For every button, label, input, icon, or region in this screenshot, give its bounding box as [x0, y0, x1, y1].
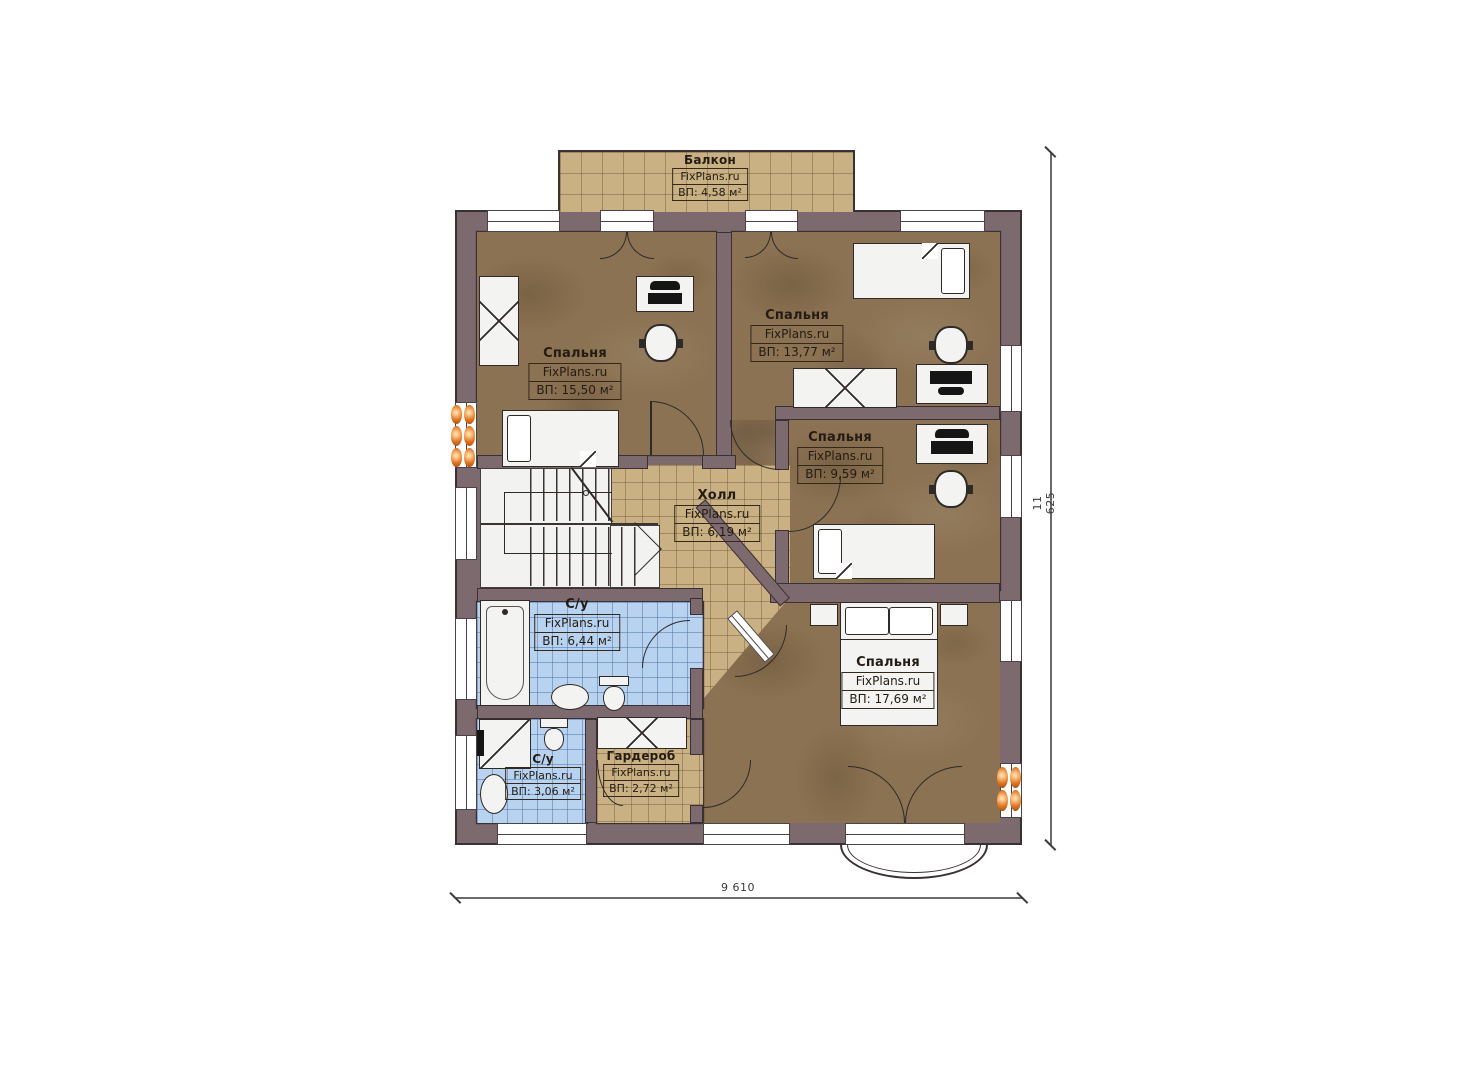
master-balcony-door-opening: [845, 823, 965, 845]
floor-plan-canvas: Балкон FixPlans.ru ВП: 4,58 м² Спальня F…: [0, 0, 1473, 1080]
room-area: ВП: 13,77 м²: [750, 344, 843, 362]
room-brand: FixPlans.ru: [672, 168, 748, 185]
room-label-bathroom-main: С/у FixPlans.ru ВП: 6,44 м²: [534, 597, 620, 651]
single-bed: [813, 524, 935, 579]
bathtub: [480, 600, 530, 706]
radiator-left: [450, 404, 476, 468]
room-name: Спальня: [797, 430, 883, 445]
pillow: [507, 415, 531, 462]
toilet-bowl: [603, 686, 625, 711]
dimension-width-label: 9 610: [713, 881, 763, 894]
room-name: Спальня: [841, 655, 934, 670]
printer-icon: [931, 441, 973, 454]
room-label-balcony: Балкон FixPlans.ru ВП: 4,58 м²: [672, 153, 748, 201]
radiator-dot: [997, 767, 1008, 788]
room-name: С/у: [534, 597, 620, 612]
room-label-bathroom-small: С/у FixPlans.ru ВП: 3,06 м²: [505, 752, 581, 800]
window-bottom-smallbath: [497, 823, 587, 845]
radiator-dot: [1010, 790, 1021, 811]
room-brand: FixPlans.ru: [750, 325, 843, 344]
towel-rail-icon: [477, 730, 484, 756]
window-left-stairs: [455, 487, 477, 560]
window-top-right: [900, 210, 985, 232]
keyboard-icon: [938, 387, 964, 395]
toilet-tank: [540, 718, 568, 728]
room-label-hall: Холл FixPlans.ru ВП: 6,19 м²: [674, 488, 760, 542]
dimension-line-horizontal: [455, 897, 1022, 899]
blanket-fold: [922, 243, 938, 259]
radiator-dot: [464, 448, 475, 467]
radiator-dot: [451, 405, 462, 424]
office-chair: [934, 326, 968, 364]
room-area: ВП: 2,72 м²: [603, 781, 679, 797]
radiator-right: [996, 766, 1022, 812]
dimension-height-label: 11 625: [1031, 483, 1057, 523]
room-brand: FixPlans.ru: [674, 505, 760, 524]
wall-wardrobe-master-b: [690, 805, 703, 823]
radiator-dot: [1010, 767, 1021, 788]
balcony-door-opening-left: [600, 210, 654, 232]
window-right-bedroom-top: [1000, 345, 1022, 412]
room-area: ВП: 4,58 м²: [672, 185, 748, 201]
room-label-bedroom-left: Спальня FixPlans.ru ВП: 15,50 м²: [528, 346, 621, 400]
wall-bedrooms-top-divider: [716, 232, 732, 469]
toilet-bowl: [544, 728, 564, 751]
office-chair: [934, 470, 968, 508]
room-brand: FixPlans.ru: [528, 363, 621, 382]
wardrobe-unit: [479, 276, 519, 366]
room-area: ВП: 9,59 м²: [797, 466, 883, 484]
pillow: [845, 607, 889, 635]
nightstand: [940, 604, 968, 626]
room-label-bedroom-top-right: Спальня FixPlans.ru ВП: 13,77 м²: [750, 308, 843, 362]
room-brand: FixPlans.ru: [797, 447, 883, 466]
monitor-icon: [930, 371, 972, 384]
single-bed: [853, 243, 970, 299]
window-right-master: [1000, 600, 1022, 662]
window-bottom-master: [703, 823, 790, 845]
blanket-line: [841, 639, 937, 640]
pedestal-sink: [480, 774, 508, 814]
room-area: ВП: 6,19 м²: [674, 524, 760, 542]
pillow: [941, 248, 965, 294]
printer-icon: [935, 429, 969, 438]
window-right-bedroom-mid: [1000, 455, 1022, 518]
stair-break-dot: [583, 490, 589, 496]
radiator-dot: [464, 405, 475, 424]
room-name: Спальня: [528, 346, 621, 361]
room-name: Холл: [674, 488, 760, 503]
blanket-fold: [580, 451, 596, 467]
radiator-dot: [451, 448, 462, 467]
printer-icon: [650, 281, 680, 290]
room-brand: FixPlans.ru: [505, 767, 581, 784]
office-chair: [644, 324, 678, 362]
pillow: [889, 607, 933, 635]
balcony-door-opening-right: [745, 210, 798, 232]
window-left-bath: [455, 618, 477, 700]
room-area: ВП: 17,69 м²: [841, 691, 934, 709]
wall-master-north: [770, 583, 1000, 603]
wall-right-bedrooms-divider: [775, 406, 1000, 420]
single-bed: [502, 410, 619, 467]
wall-bath-master-b: [690, 668, 703, 719]
room-area: ВП: 3,06 м²: [505, 784, 581, 800]
room-label-bedroom-mid-right: Спальня FixPlans.ru ВП: 9,59 м²: [797, 430, 883, 484]
printer-icon: [648, 293, 682, 304]
sink: [551, 684, 589, 710]
computer-desk: [916, 424, 988, 464]
room-name: Гардероб: [603, 749, 679, 763]
room-area: ВП: 6,44 м²: [534, 633, 620, 651]
drain-icon: [502, 609, 508, 615]
radiator-dot: [464, 426, 475, 445]
room-brand: FixPlans.ru: [603, 764, 679, 781]
room-label-bedroom-master: Спальня FixPlans.ru ВП: 17,69 м²: [841, 655, 934, 709]
window-top-left: [487, 210, 560, 232]
bathtub-inner: [486, 606, 524, 700]
toilet-tank: [599, 676, 629, 686]
room-label-wardrobe: Гардероб FixPlans.ru ВП: 2,72 м²: [603, 749, 679, 797]
blanket-fold: [836, 563, 852, 579]
wardrobe-unit: [597, 717, 687, 749]
wardrobe-unit: [793, 368, 897, 408]
window-left-smallbath: [455, 735, 477, 810]
room-area: ВП: 15,50 м²: [528, 382, 621, 400]
computer-desk: [916, 364, 988, 404]
room-name: С/у: [505, 752, 581, 766]
nightstand: [810, 604, 838, 626]
room-name: Спальня: [750, 308, 843, 323]
wall-wardrobe-master-a: [690, 719, 703, 755]
room-name: Балкон: [672, 153, 748, 167]
desk: [636, 276, 694, 312]
wall-smallbath-wardrobe: [585, 719, 597, 823]
room-brand: FixPlans.ru: [841, 672, 934, 691]
room-brand: FixPlans.ru: [534, 614, 620, 633]
radiator-dot: [451, 426, 462, 445]
wall-left-bedroom-south-b: [702, 455, 736, 469]
wall-bath-master-a: [690, 598, 703, 615]
radiator-dot: [997, 790, 1008, 811]
